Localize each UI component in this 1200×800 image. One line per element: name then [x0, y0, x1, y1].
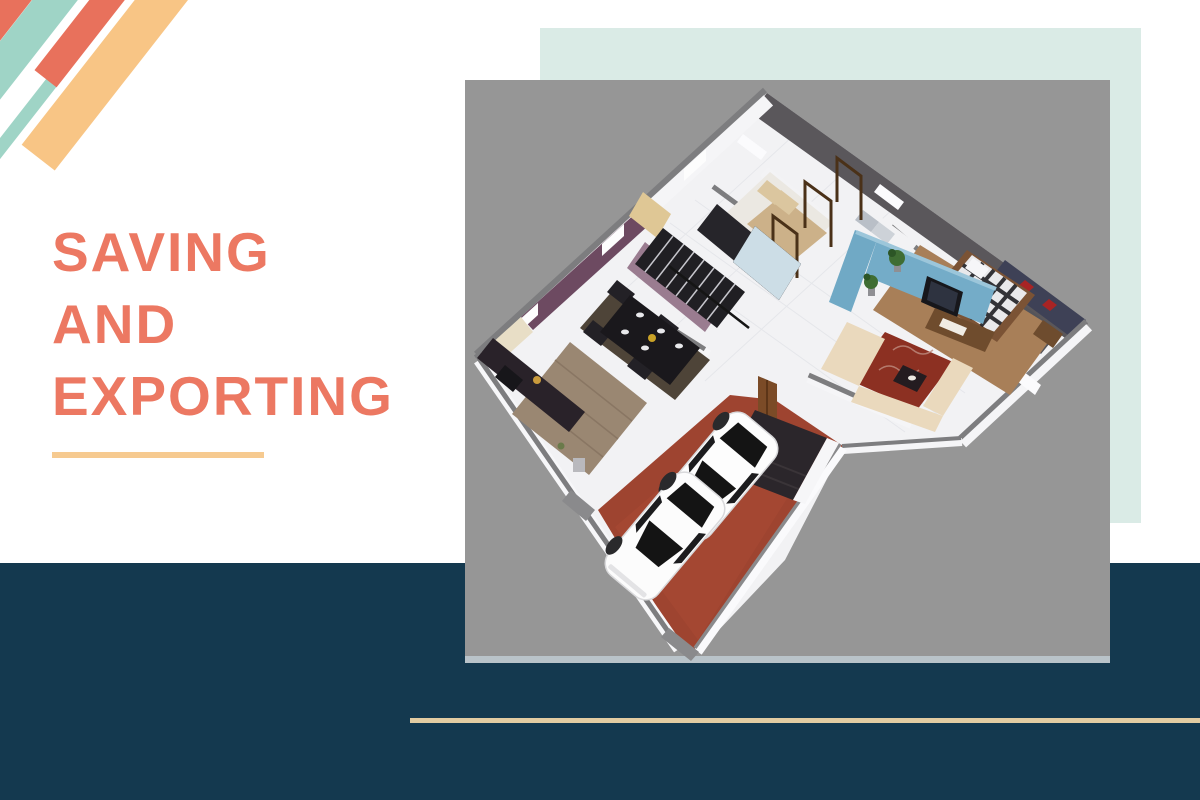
title-line-1: SAVING [52, 216, 472, 288]
slide-title: SAVING AND EXPORTING [52, 216, 472, 432]
photo-bottom-strip [465, 656, 1110, 663]
title-line-2: AND [52, 288, 472, 360]
kitchen-appliance [573, 458, 585, 472]
title-underline [52, 452, 264, 458]
slide-canvas: SAVING AND EXPORTING [0, 0, 1200, 800]
kitchen-bowl [533, 376, 541, 384]
footer-rule [410, 718, 1200, 723]
floor-plan-image [465, 80, 1110, 663]
dining-centerpiece [648, 334, 656, 342]
title-line-3: EXPORTING [52, 360, 472, 432]
corner-stripes [0, 0, 270, 230]
